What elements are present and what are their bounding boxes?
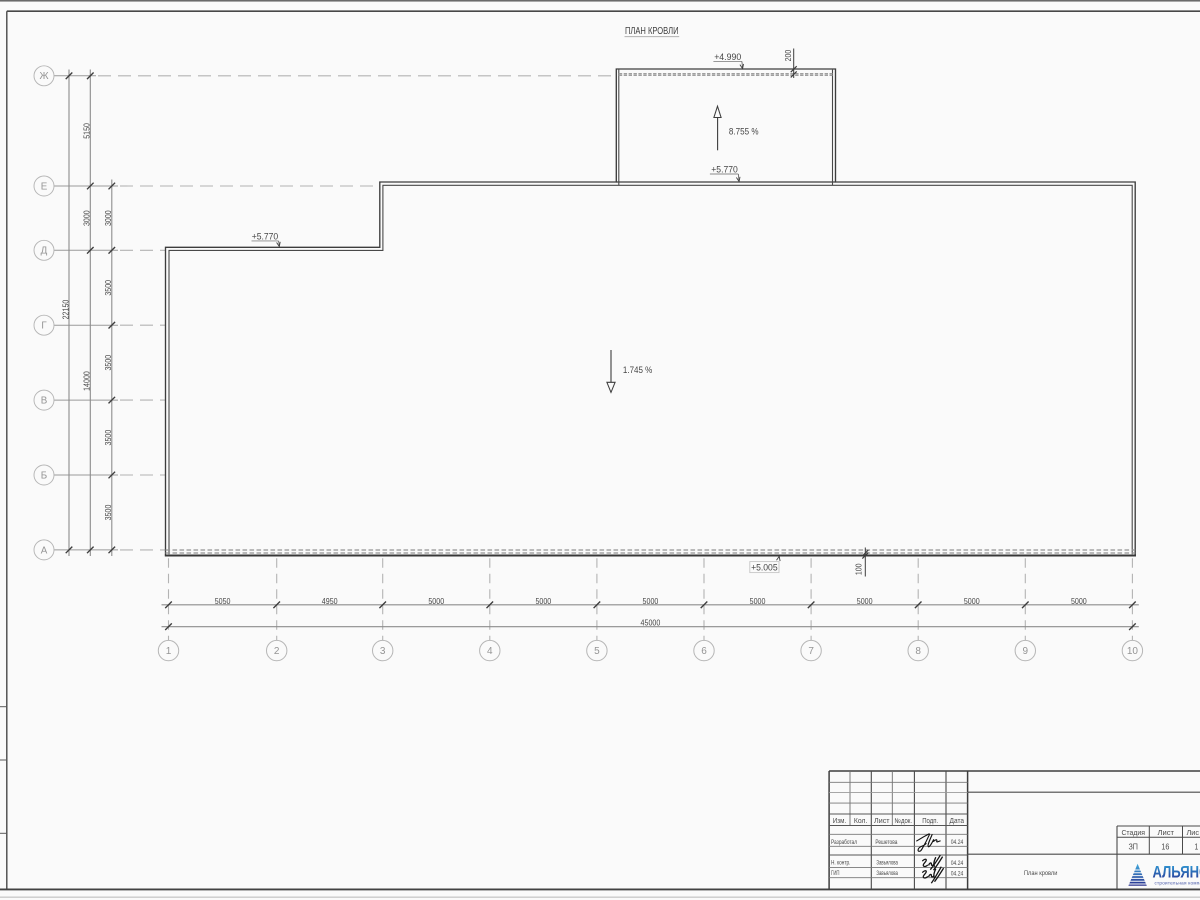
svg-text:Н. контр.: Н. контр. bbox=[831, 860, 851, 867]
svg-text:+5.005: +5.005 bbox=[751, 562, 778, 572]
svg-text:Лист: Лист bbox=[1158, 828, 1175, 837]
svg-text:1: 1 bbox=[166, 646, 172, 657]
svg-text:Лист: Лист bbox=[874, 818, 890, 825]
svg-text:3: 3 bbox=[380, 646, 386, 657]
svg-text:14000: 14000 bbox=[82, 371, 92, 391]
svg-text:Решетова: Решетова bbox=[875, 839, 897, 846]
svg-text:6: 6 bbox=[701, 646, 707, 657]
svg-text:3500: 3500 bbox=[103, 355, 113, 371]
svg-text:10: 10 bbox=[1127, 646, 1139, 657]
svg-text:Завьялова: Завьялова bbox=[876, 870, 898, 877]
svg-text:А: А bbox=[41, 545, 48, 556]
svg-text:1: 1 bbox=[1195, 843, 1199, 852]
svg-text:Б: Б bbox=[41, 470, 47, 481]
svg-text:3500: 3500 bbox=[103, 280, 113, 296]
svg-text:3500: 3500 bbox=[103, 429, 113, 445]
svg-text:Кол.: Кол. bbox=[854, 818, 868, 825]
svg-text:Дата: Дата bbox=[950, 818, 965, 825]
svg-text:5000: 5000 bbox=[750, 596, 766, 606]
svg-text:Изм.: Изм. bbox=[833, 818, 847, 825]
svg-text:№док.: №док. bbox=[895, 818, 913, 825]
svg-text:ПЛАН КРОВЛИ: ПЛАН КРОВЛИ bbox=[625, 26, 679, 37]
svg-text:5000: 5000 bbox=[964, 596, 980, 606]
svg-text:200: 200 bbox=[783, 50, 793, 62]
svg-text:5050: 5050 bbox=[215, 596, 231, 606]
svg-text:45000: 45000 bbox=[641, 618, 661, 628]
svg-text:Разработал: Разработал bbox=[831, 838, 857, 846]
svg-text:3000: 3000 bbox=[103, 210, 113, 226]
svg-text:Стадия: Стадия bbox=[1121, 828, 1145, 837]
svg-text:5000: 5000 bbox=[857, 596, 873, 606]
svg-text:АЛЬЯНС: АЛЬЯНС bbox=[1153, 864, 1200, 882]
svg-text:04.24: 04.24 bbox=[951, 839, 964, 846]
svg-text:1.745 %: 1.745 % bbox=[623, 365, 653, 375]
svg-text:7: 7 bbox=[808, 646, 814, 657]
svg-text:Ж: Ж bbox=[39, 71, 48, 82]
svg-text:+4.990: +4.990 bbox=[714, 52, 741, 62]
svg-text:5: 5 bbox=[594, 646, 600, 657]
svg-text:+5.770: +5.770 bbox=[711, 165, 738, 175]
svg-text:Подп.: Подп. bbox=[922, 818, 938, 825]
svg-text:План кровли: План кровли bbox=[1024, 870, 1058, 877]
svg-text:16: 16 bbox=[1161, 843, 1169, 852]
svg-text:+5.770: +5.770 bbox=[252, 232, 279, 242]
svg-text:4: 4 bbox=[487, 646, 493, 657]
svg-text:100: 100 bbox=[853, 563, 863, 575]
svg-text:3500: 3500 bbox=[103, 504, 113, 520]
svg-text:Лис: Лис bbox=[1187, 828, 1200, 837]
svg-text:3000: 3000 bbox=[82, 210, 92, 226]
svg-text:5000: 5000 bbox=[643, 596, 659, 606]
svg-text:5000: 5000 bbox=[535, 596, 551, 606]
svg-text:5000: 5000 bbox=[428, 596, 444, 606]
svg-text:Е: Е bbox=[41, 181, 48, 192]
svg-text:Д: Д bbox=[41, 246, 48, 257]
svg-text:04.24: 04.24 bbox=[951, 870, 964, 877]
svg-text:В: В bbox=[41, 396, 48, 407]
svg-text:9: 9 bbox=[1023, 646, 1029, 657]
svg-text:ГИП: ГИП bbox=[831, 870, 840, 877]
svg-text:8: 8 bbox=[915, 646, 921, 657]
svg-text:8.755 %: 8.755 % bbox=[729, 126, 759, 136]
svg-text:Г: Г bbox=[41, 321, 47, 332]
svg-text:2: 2 bbox=[274, 646, 280, 657]
svg-text:22150: 22150 bbox=[60, 299, 70, 319]
svg-text:4950: 4950 bbox=[322, 596, 338, 606]
svg-text:строительная компания: строительная компания bbox=[1155, 880, 1200, 885]
svg-text:Завьялова: Завьялова bbox=[876, 860, 898, 867]
svg-text:5150: 5150 bbox=[82, 123, 92, 139]
svg-text:ЗП: ЗП bbox=[1128, 843, 1138, 852]
svg-text:5000: 5000 bbox=[1071, 596, 1087, 606]
svg-text:04.24: 04.24 bbox=[951, 860, 964, 867]
